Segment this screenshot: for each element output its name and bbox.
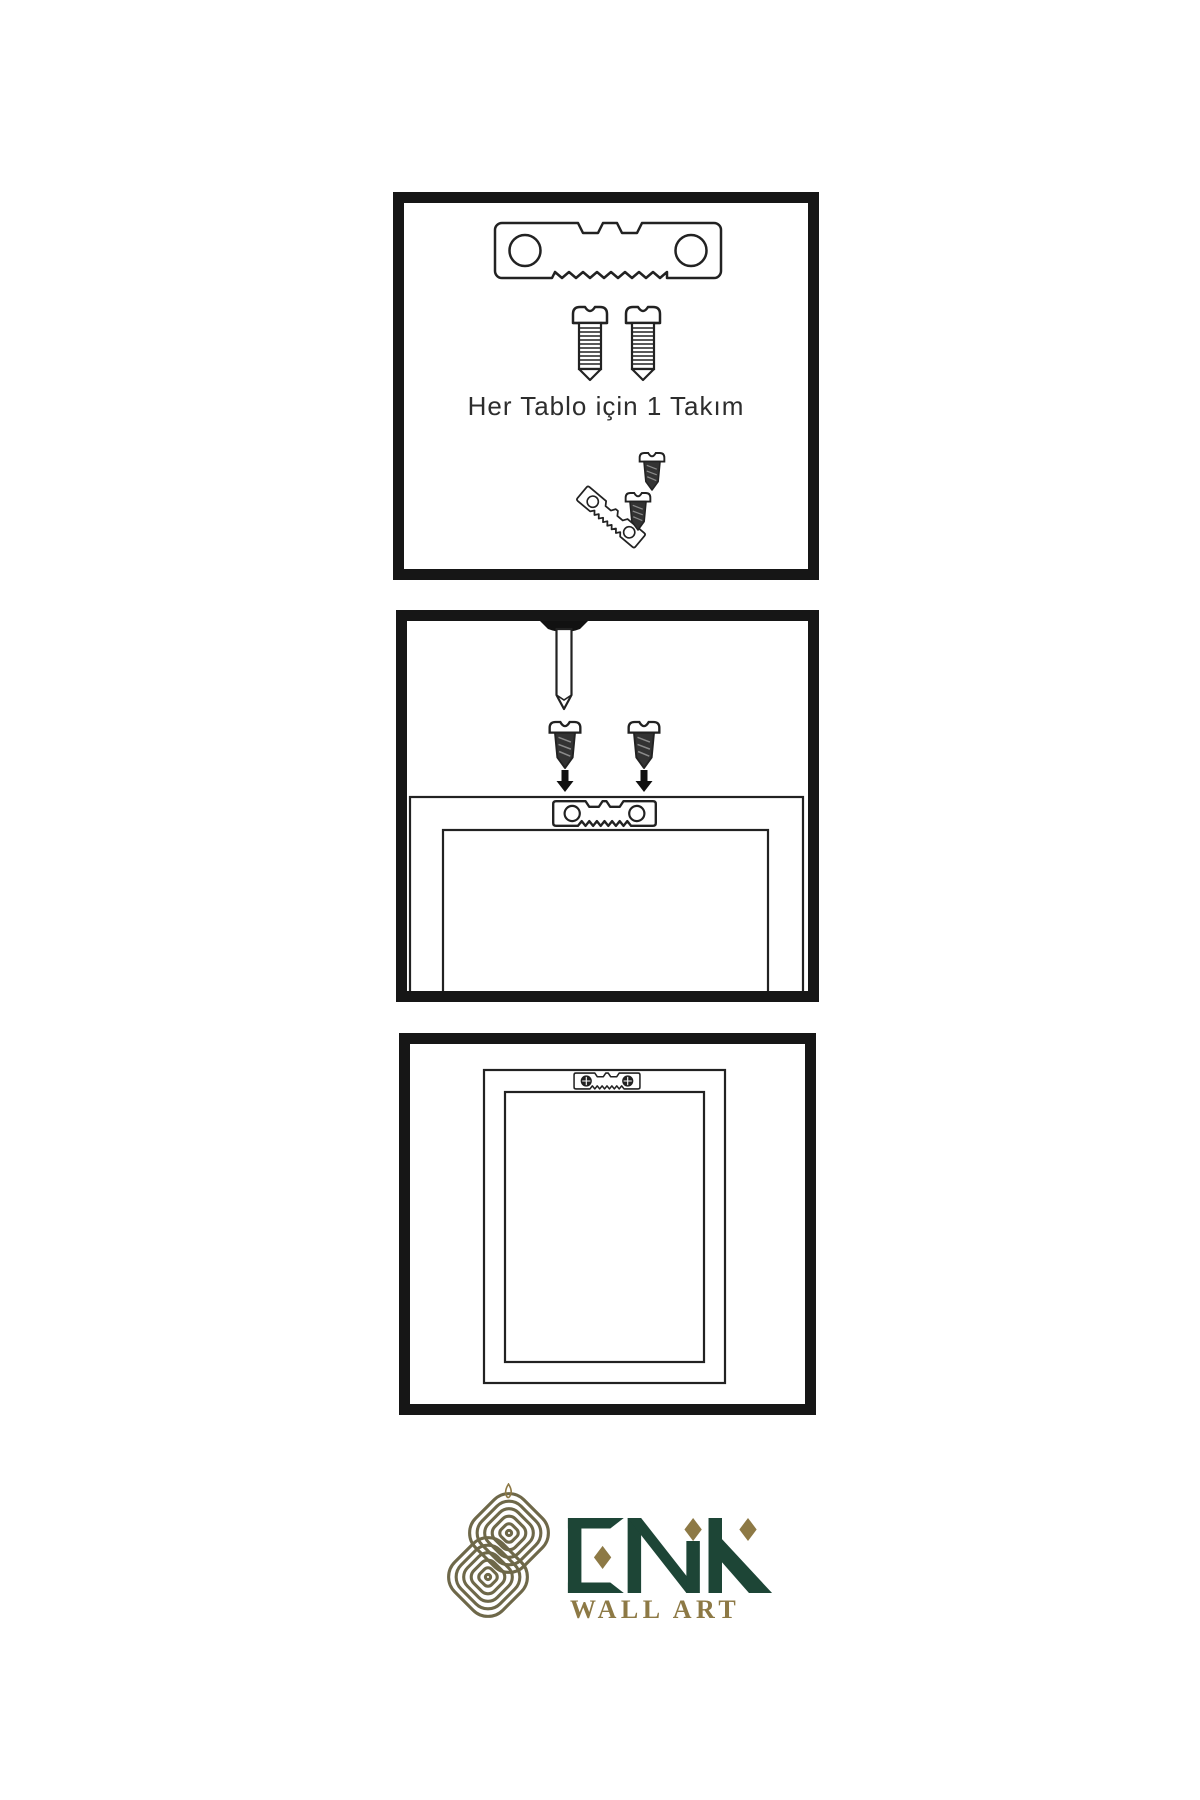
framed-picture [484,1070,725,1383]
sawtooth-hanger-icon [574,1073,640,1089]
panel-hardware-kit: Her Tablo için 1 Takım [393,192,819,580]
screw-icon [629,722,660,768]
panel-hanging-result [399,1033,816,1415]
hardware-kit-graphic [404,203,808,569]
screw-icon [550,722,581,768]
screw-icon [626,307,660,380]
sawtooth-hanger-icon [495,223,721,278]
sawtooth-hanger-icon [553,801,656,826]
screw-head-icon [582,1076,592,1086]
hanging-result-graphic [410,1044,805,1404]
brand-logo: ENK WALL ART [437,1483,797,1663]
enk-wordmark: ENK [566,1516,774,1595]
flame-accent-icon [506,1484,512,1498]
knot-icon [437,1483,560,1627]
down-arrow-icon [636,770,653,792]
screw-icon [573,307,607,380]
kit-caption: Her Tablo için 1 Takım [404,391,808,422]
screw-head-icon [623,1076,633,1086]
wall-art-label: WALL ART [570,1595,740,1625]
wall-mounting-graphic [407,621,808,991]
screw-into-hanger-icon [576,453,664,548]
down-arrow-icon [557,770,574,792]
installation-sheet: Her Tablo için 1 Takım [0,0,1200,1800]
wall-nail-icon [540,621,588,709]
panel-wall-mounting [396,610,819,1002]
frame-back [410,797,803,991]
